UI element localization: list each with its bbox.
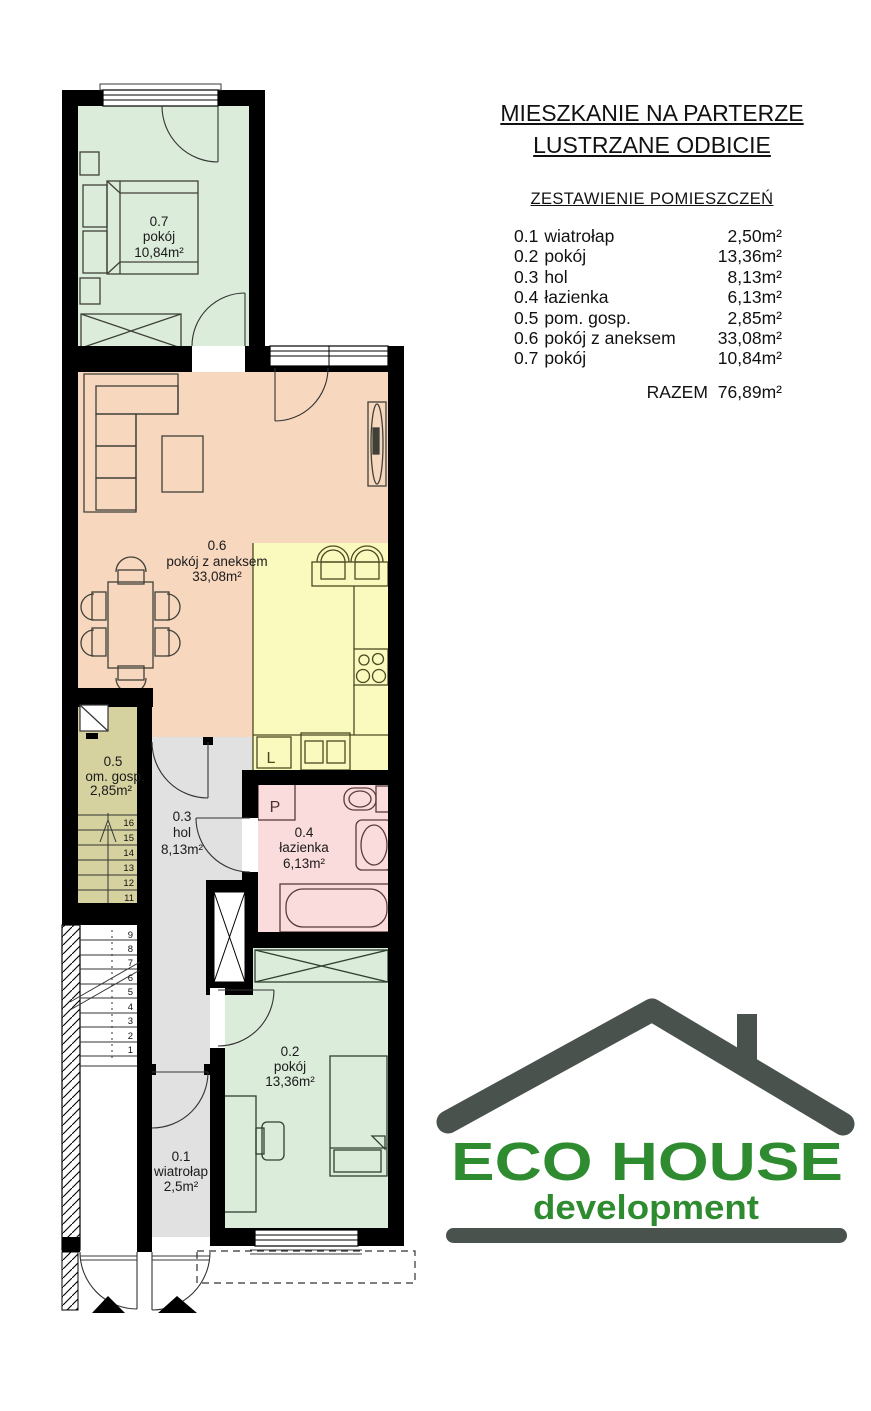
svg-text:pokój: pokój — [143, 229, 175, 244]
svg-text:0.3: 0.3 — [173, 809, 192, 824]
room-schedule-row: 0.3hol 8,13m² — [514, 267, 782, 287]
svg-text:3: 3 — [128, 1016, 133, 1027]
total-label: RAZEM — [647, 382, 708, 402]
entrance-arrow-right — [158, 1296, 197, 1313]
room-schedule: 0.1wiatrołap 2,50m² 0.2pokój 13,36m² 0.3… — [514, 226, 782, 369]
svg-text:pokój z aneksem: pokój z aneksem — [166, 554, 267, 569]
svg-text:0.1: 0.1 — [172, 1149, 191, 1164]
terrace-outline — [197, 1251, 415, 1283]
room-schedule-row: 0.7pokój 10,84m² — [514, 348, 782, 368]
svg-text:13: 13 — [123, 863, 134, 874]
svg-text:pokój: pokój — [274, 1059, 306, 1074]
logo-base-bar — [446, 1228, 847, 1243]
entrance-arrow-left — [92, 1296, 125, 1313]
logo-name: ECO HOUSE — [451, 1132, 843, 1192]
svg-text:6: 6 — [128, 973, 133, 984]
plan-title-line2: LUSTRZANE ODBICIE — [452, 129, 852, 161]
total-value: 76,89m² — [718, 382, 782, 402]
svg-text:6,13m²: 6,13m² — [283, 856, 326, 871]
svg-text:8,13m²: 8,13m² — [161, 842, 204, 857]
svg-text:0.4: 0.4 — [295, 825, 314, 840]
svg-text:9: 9 — [128, 930, 133, 941]
room-schedule-title: ZESTAWIENIE POMIESZCZEŃ — [452, 190, 852, 209]
svg-text:łazienka: łazienka — [279, 840, 329, 855]
svg-text:10,84m²: 10,84m² — [134, 245, 184, 260]
svg-text:7: 7 — [128, 958, 133, 969]
room-schedule-row: 0.4łazienka 6,13m² — [514, 287, 782, 307]
hall-floor-top — [152, 737, 253, 770]
stairs-lower-numbers: 9 8 7 6 5 4 3 2 1 — [128, 930, 133, 1056]
svg-text:2,5m²: 2,5m² — [164, 1179, 199, 1194]
ventilation-shaft — [214, 892, 245, 982]
stairwell-exterior-wall — [62, 925, 80, 1310]
svg-text:0.6: 0.6 — [208, 538, 227, 553]
logo-subtitle: development — [533, 1189, 759, 1227]
washing-machine-label: P — [270, 799, 281, 816]
room-schedule-row: 0.2pokój 13,36m² — [514, 246, 782, 266]
svg-text:0.7: 0.7 — [150, 214, 169, 229]
fridge-label: L — [267, 750, 276, 767]
svg-text:33,08m²: 33,08m² — [192, 569, 242, 584]
svg-text:om. gosp.: om. gosp. — [85, 769, 144, 784]
svg-text:13,36m²: 13,36m² — [265, 1074, 315, 1089]
svg-text:0.5: 0.5 — [104, 754, 123, 769]
total-area: RAZEM 76,89m² — [514, 382, 782, 403]
svg-text:8: 8 — [128, 944, 133, 955]
room-schedule-row: 0.6pokój z aneksem 33,08m² — [514, 328, 782, 348]
svg-text:wiatrołap: wiatrołap — [153, 1164, 208, 1179]
plan-title: MIESZKANIE NA PARTERZE LUSTRZANE ODBICIE — [452, 97, 852, 161]
floor-plan: 16 15 14 13 12 11 9 8 7 6 5 4 3 2 1 — [0, 0, 440, 1330]
svg-text:0.2: 0.2 — [281, 1044, 300, 1059]
plan-title-line1: MIESZKANIE NA PARTERZE — [452, 97, 852, 129]
svg-text:14: 14 — [123, 848, 134, 859]
svg-text:2,85m²: 2,85m² — [90, 783, 133, 798]
svg-text:hol: hol — [173, 825, 191, 840]
svg-text:16: 16 — [123, 818, 134, 829]
balcony-window-room-0-6 — [270, 346, 388, 366]
svg-text:11: 11 — [124, 893, 134, 904]
entrance-details — [80, 1251, 415, 1313]
svg-text:4: 4 — [128, 1002, 133, 1013]
svg-text:12: 12 — [123, 878, 134, 889]
logo-roof — [448, 1010, 843, 1124]
window-room-0-7 — [103, 90, 218, 106]
svg-text:2: 2 — [128, 1031, 133, 1042]
room-schedule-row: 0.1wiatrołap 2,50m² — [514, 226, 782, 246]
eco-house-logo: ECO HOUSE development — [430, 988, 871, 1268]
svg-text:1: 1 — [128, 1045, 133, 1056]
room-schedule-row: 0.5pom. gosp. 2,85m² — [514, 308, 782, 328]
svg-text:15: 15 — [123, 833, 134, 844]
svg-text:5: 5 — [128, 987, 133, 998]
